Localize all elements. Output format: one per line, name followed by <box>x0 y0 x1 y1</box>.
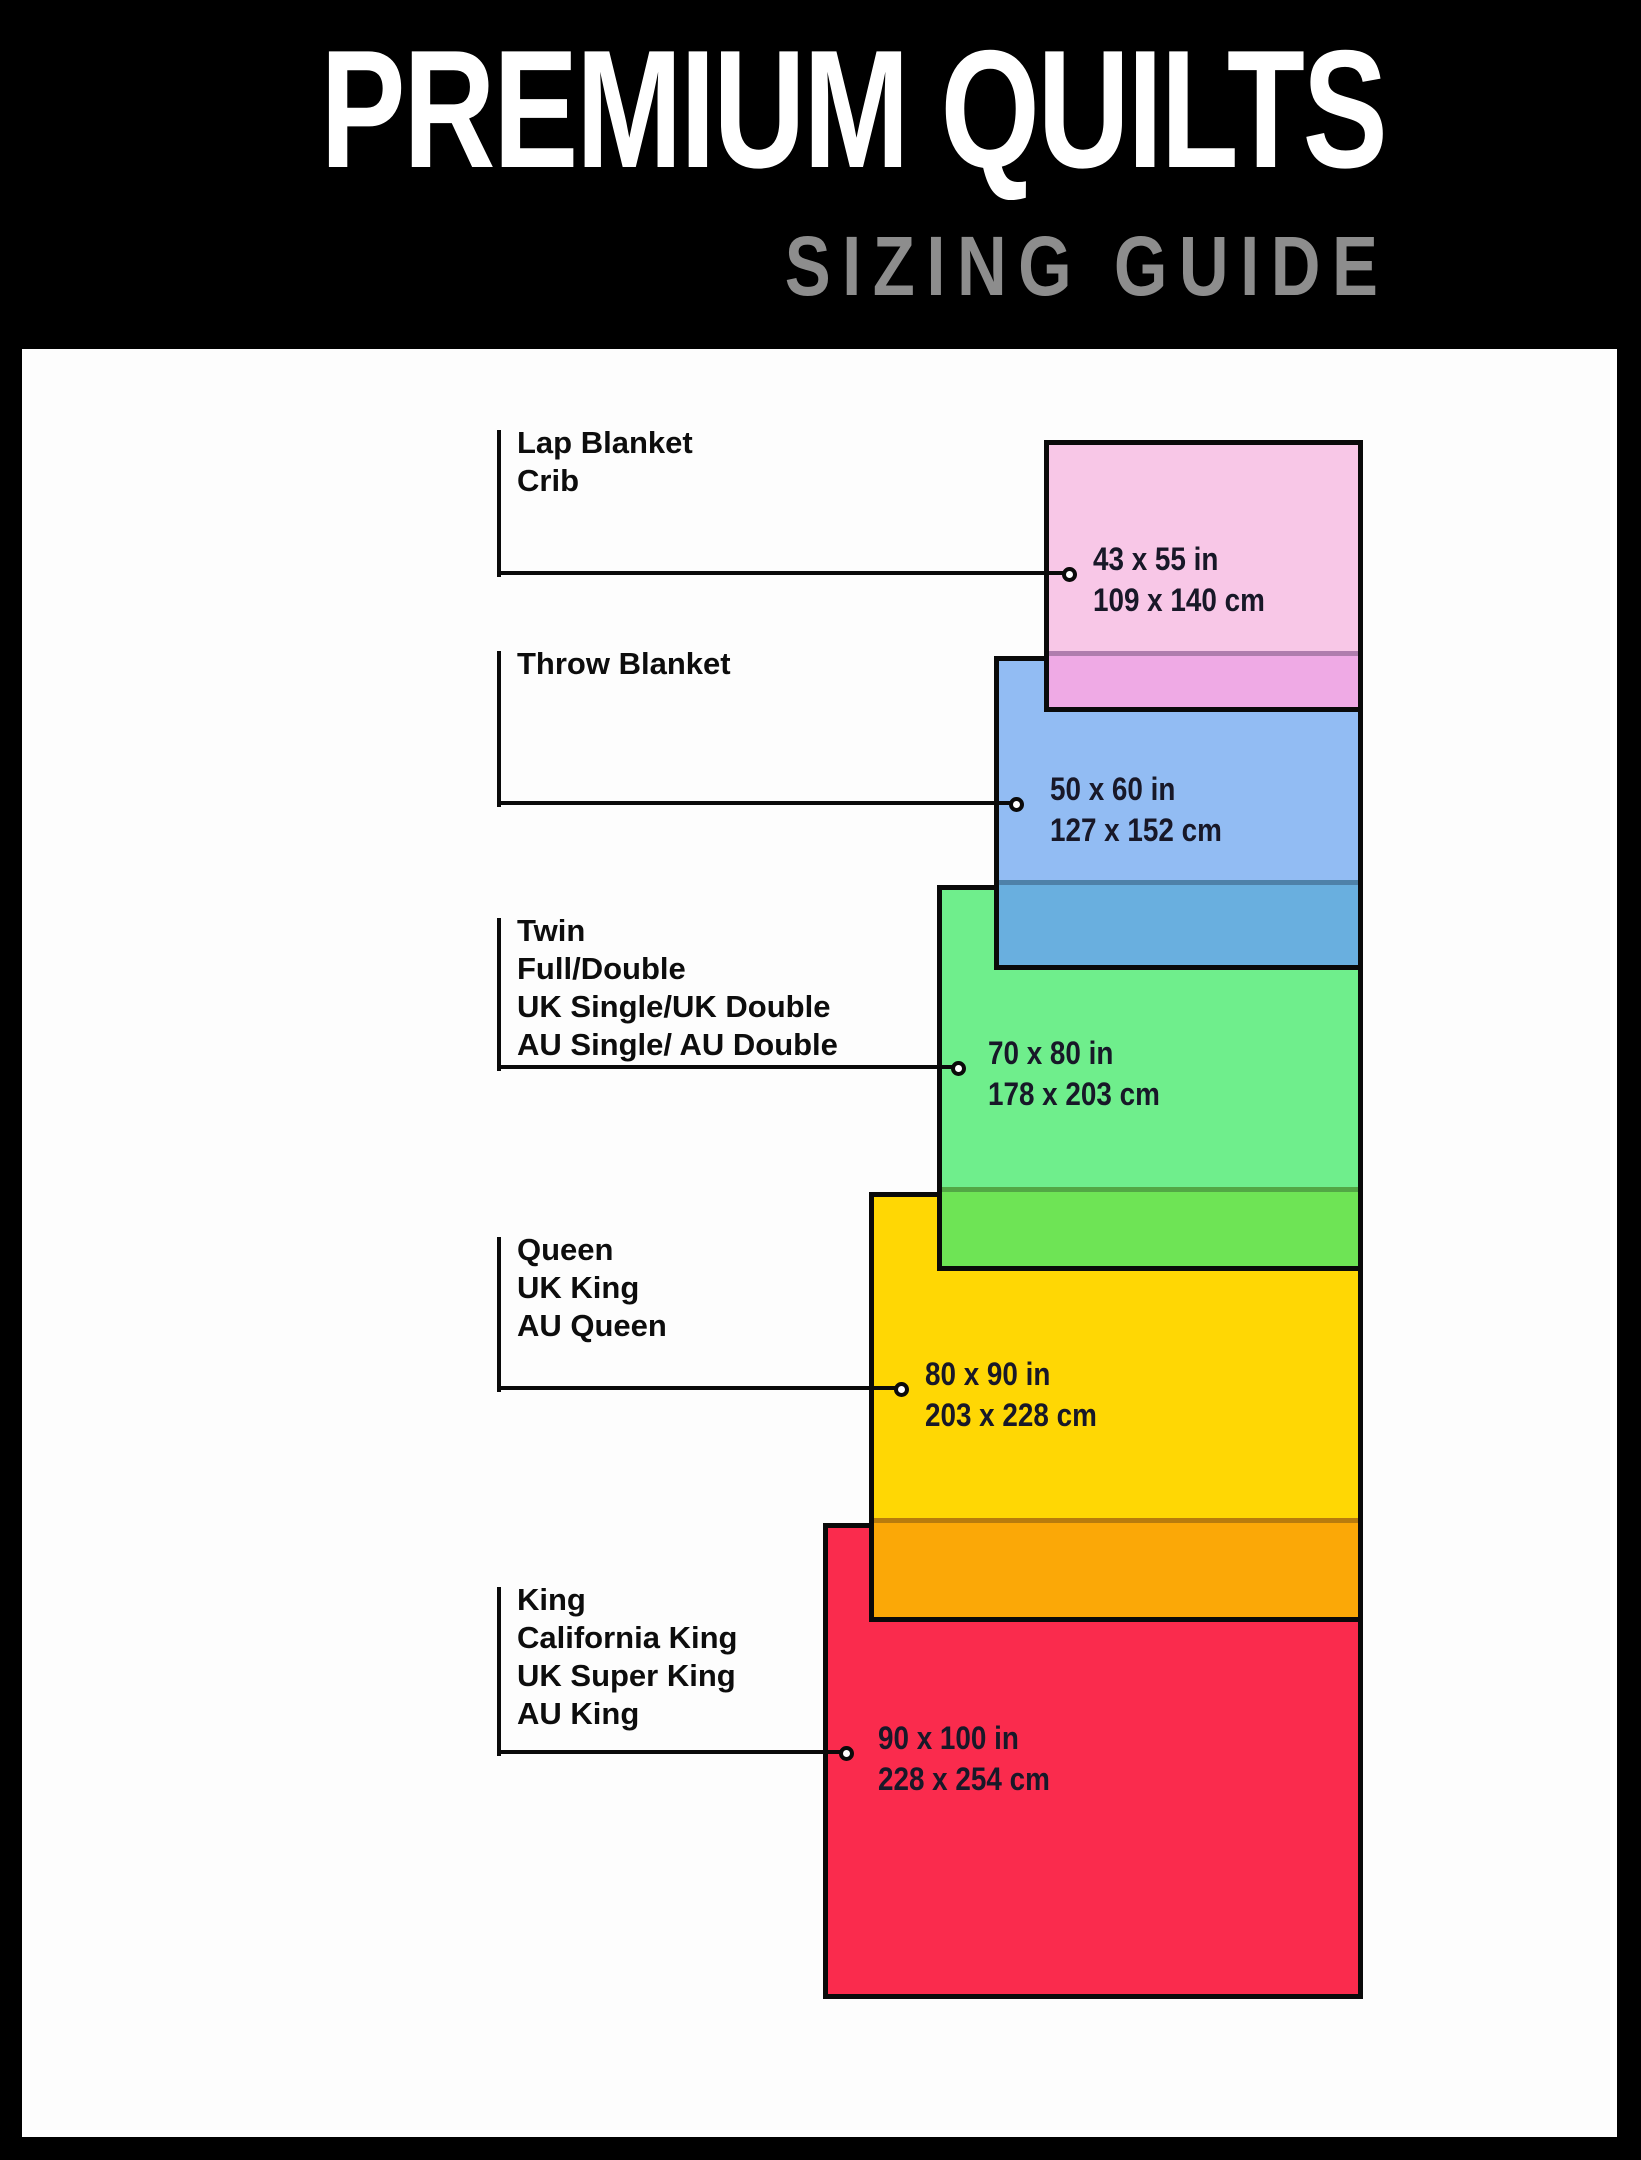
size-dimensions: 80 x 90 in 203 x 228 cm <box>925 1354 1123 1436</box>
size-label-line: King <box>517 1581 737 1619</box>
size-label-line: Lap Blanket <box>517 424 693 462</box>
callout-marker-icon <box>839 1746 854 1761</box>
dimension-inches: 70 x 80 in <box>988 1033 1160 1074</box>
overlap-strip <box>942 1187 1358 1266</box>
size-label-line: Twin <box>517 912 838 950</box>
dimension-cm: 109 x 140 cm <box>1093 580 1265 621</box>
dimension-cm: 127 x 152 cm <box>1050 810 1222 851</box>
bracket-vline <box>497 651 501 807</box>
size-dimensions: 70 x 80 in 178 x 203 cm <box>988 1033 1186 1115</box>
size-label: Lap BlanketCrib <box>517 424 693 500</box>
size-label-line: UK King <box>517 1269 667 1307</box>
callout-line <box>497 1065 958 1069</box>
overlap-strip <box>1049 651 1358 707</box>
callout-line <box>497 801 1016 805</box>
dimension-cm: 203 x 228 cm <box>925 1395 1097 1436</box>
size-dimensions: 43 x 55 in 109 x 140 cm <box>1093 539 1291 621</box>
size-label: Throw Blanket <box>517 645 731 683</box>
size-label-line: UK Super King <box>517 1657 737 1695</box>
size-label-line: UK Single/UK Double <box>517 988 838 1026</box>
bracket-vline <box>497 1587 501 1756</box>
dimension-inches: 50 x 60 in <box>1050 769 1222 810</box>
bracket-vline <box>497 1237 501 1392</box>
size-label-line: Crib <box>517 462 693 500</box>
overlap-strip <box>874 1518 1358 1617</box>
size-label-line: AU Queen <box>517 1307 667 1345</box>
infographic-page: PREMIUM QUILTS SIZING GUIDE Lap BlanketC… <box>0 0 1641 2160</box>
callout-marker-icon <box>951 1061 966 1076</box>
dimension-inches: 80 x 90 in <box>925 1354 1097 1395</box>
size-label-line: AU King <box>517 1695 737 1733</box>
size-label-line: California King <box>517 1619 737 1657</box>
dimension-inches: 43 x 55 in <box>1093 539 1265 580</box>
overlap-strip <box>999 880 1358 965</box>
size-label-line: AU Single/ AU Double <box>517 1026 838 1064</box>
size-dimensions: 90 x 100 in 228 x 254 cm <box>878 1718 1076 1800</box>
dimension-cm: 228 x 254 cm <box>878 1759 1050 1800</box>
dimension-inches: 90 x 100 in <box>878 1718 1050 1759</box>
callout-marker-icon <box>894 1382 909 1397</box>
callout-marker-icon <box>1009 797 1024 812</box>
callout-line <box>497 1750 846 1754</box>
page-subtitle: SIZING GUIDE <box>784 224 1389 308</box>
size-dimensions: 50 x 60 in 127 x 152 cm <box>1050 769 1248 851</box>
callout-marker-icon <box>1062 567 1077 582</box>
callout-line <box>497 571 1069 575</box>
bracket-vline <box>497 918 501 1071</box>
content-panel <box>22 349 1617 2137</box>
size-label: QueenUK KingAU Queen <box>517 1231 667 1345</box>
size-label: TwinFull/DoubleUK Single/UK DoubleAU Sin… <box>517 912 838 1064</box>
bracket-vline <box>497 430 501 577</box>
size-label-line: Queen <box>517 1231 667 1269</box>
page-title: PREMIUM QUILTS <box>321 34 1386 184</box>
size-label-line: Full/Double <box>517 950 838 988</box>
size-label: KingCalifornia KingUK Super KingAU King <box>517 1581 737 1733</box>
callout-line <box>497 1386 901 1390</box>
size-label-line: Throw Blanket <box>517 645 731 683</box>
dimension-cm: 178 x 203 cm <box>988 1074 1160 1115</box>
